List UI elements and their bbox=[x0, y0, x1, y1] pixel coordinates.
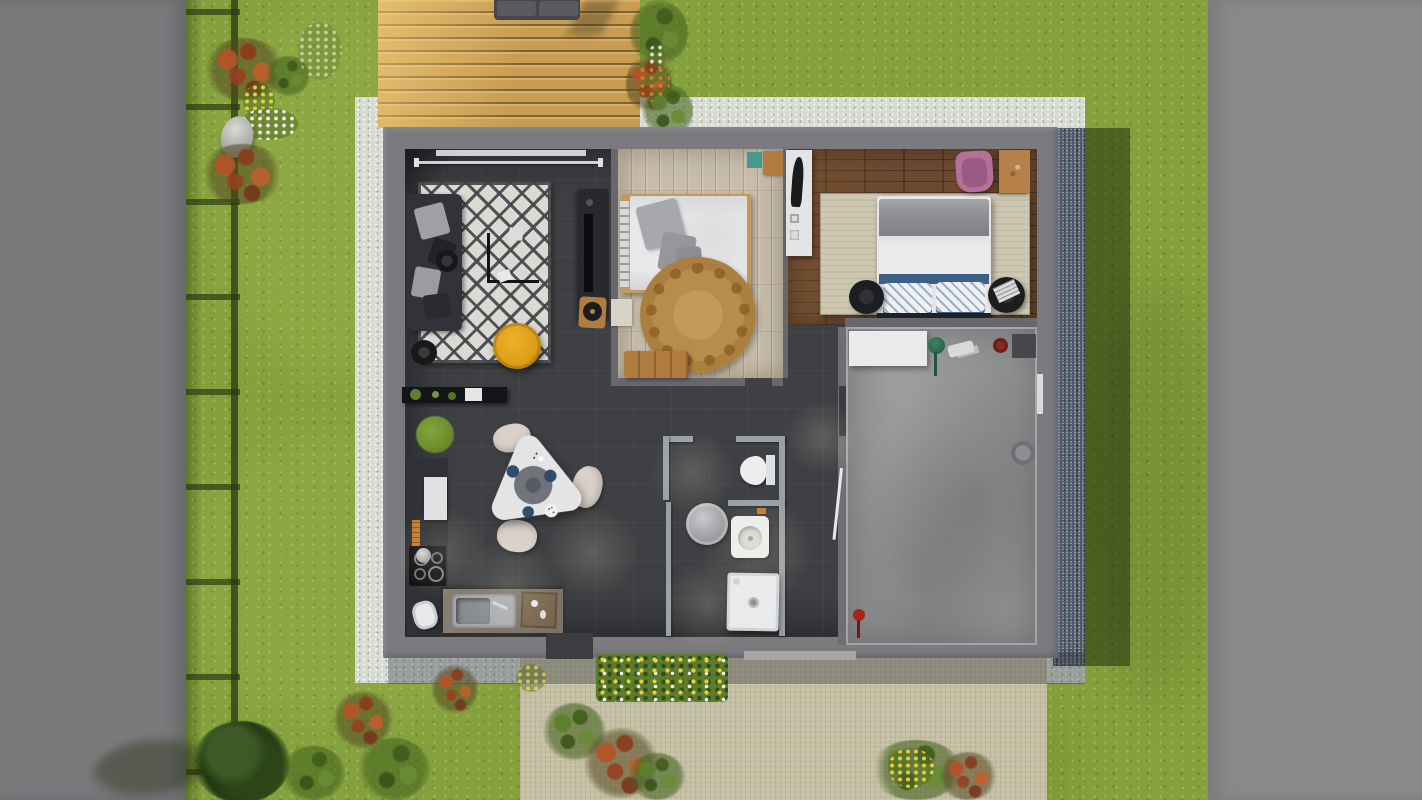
black-tray-table bbox=[436, 250, 458, 272]
flower-bed bbox=[596, 654, 728, 702]
watering-can-handle bbox=[934, 352, 937, 376]
house-shadow-east bbox=[1085, 128, 1130, 666]
shelf-plant bbox=[432, 391, 439, 398]
bed2-blanket bbox=[879, 199, 989, 236]
wood-desk bbox=[999, 150, 1030, 193]
garden-bush bbox=[358, 738, 430, 800]
garage-workbench bbox=[849, 331, 927, 366]
garden-bush bbox=[628, 753, 685, 800]
pink-chair-seat bbox=[961, 157, 988, 188]
grass-tuft bbox=[516, 664, 546, 692]
bed1-nightstand bbox=[611, 299, 632, 326]
garage-floor bbox=[846, 327, 1037, 645]
floor-mat bbox=[1012, 334, 1036, 358]
deck-sofa-cushion bbox=[497, 1, 536, 16]
white-flower-specks bbox=[298, 22, 342, 80]
console-speaker bbox=[586, 199, 593, 206]
bath-wall bbox=[779, 436, 785, 506]
light-switch bbox=[790, 230, 799, 240]
garage-window bbox=[1037, 374, 1043, 414]
garage-threshold-step bbox=[744, 651, 856, 660]
bath-wall bbox=[736, 436, 785, 442]
interior-wall bbox=[611, 149, 618, 386]
shelf-plant bbox=[410, 389, 421, 400]
round-nightstand bbox=[849, 280, 884, 314]
garden-bush bbox=[432, 664, 478, 714]
bed1-headboard bbox=[620, 201, 629, 287]
curtain-rod bbox=[417, 161, 600, 164]
sofa-pillow bbox=[422, 292, 451, 319]
toilet-tank bbox=[766, 455, 775, 485]
garden-bush bbox=[281, 746, 345, 800]
teal-box bbox=[747, 152, 762, 168]
red-tool-handle bbox=[857, 620, 860, 638]
boundary-wall-right bbox=[1208, 0, 1422, 800]
light-pool bbox=[660, 560, 755, 650]
deck-sofa-cushion bbox=[539, 1, 578, 16]
curtain-rod-cap bbox=[414, 158, 419, 167]
coffee-table-frame bbox=[487, 233, 490, 283]
moss-plant bbox=[416, 416, 454, 453]
bed2-pillow bbox=[883, 283, 932, 316]
interior-wall bbox=[611, 378, 745, 386]
light-pool bbox=[785, 400, 860, 475]
window-sill-living bbox=[436, 150, 586, 156]
coffee-table-frame bbox=[487, 280, 539, 283]
yellow-flowers bbox=[888, 748, 934, 788]
boundary-wall-left bbox=[0, 0, 186, 800]
bed1-bench bbox=[624, 351, 688, 378]
shelf-box bbox=[465, 388, 482, 401]
interior-wall bbox=[772, 378, 783, 386]
bed2-sheet bbox=[879, 236, 989, 276]
vinyl-record bbox=[583, 302, 602, 321]
yellow-pouf bbox=[493, 323, 541, 369]
light-switch bbox=[790, 214, 799, 223]
shelf-plant bbox=[448, 392, 456, 400]
wood-dresser bbox=[763, 151, 784, 175]
garden-tree bbox=[193, 721, 290, 800]
curtain-rod-cap bbox=[598, 158, 603, 167]
garden-scene bbox=[0, 0, 1422, 800]
white-flowers bbox=[648, 44, 666, 68]
light-pool bbox=[650, 430, 735, 515]
bed2-pillow bbox=[936, 282, 985, 315]
interior-wall bbox=[845, 318, 1037, 327]
tv-screen bbox=[584, 214, 593, 292]
garden-bush bbox=[200, 144, 284, 204]
entry-door-opening bbox=[546, 633, 593, 659]
coffee-table-book bbox=[508, 227, 524, 241]
black-side-table bbox=[411, 340, 437, 365]
dark-red-bucket bbox=[993, 338, 1008, 353]
light-pool bbox=[545, 505, 640, 600]
gray-bucket bbox=[1011, 441, 1035, 465]
garden-bush bbox=[938, 752, 998, 800]
toilet-bowl bbox=[740, 456, 767, 485]
